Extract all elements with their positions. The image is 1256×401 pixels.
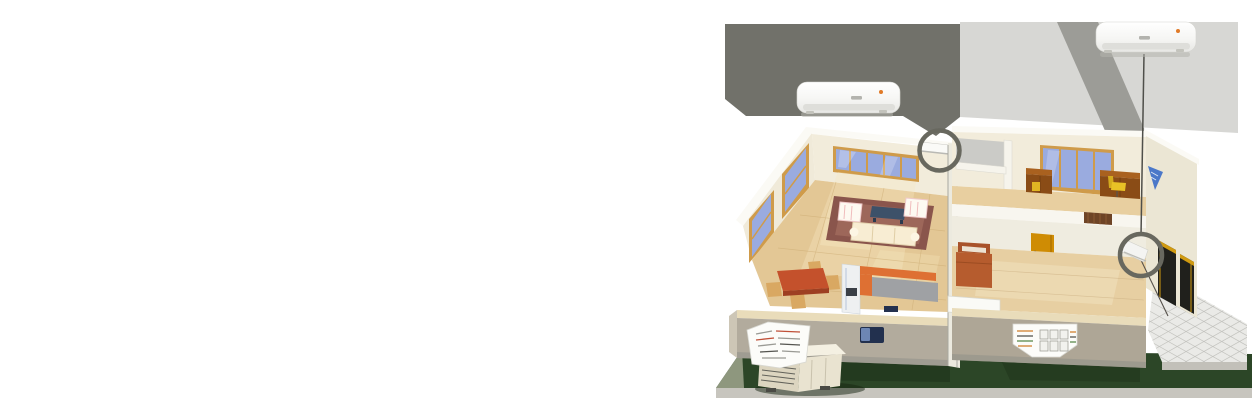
dining-table-top: [777, 268, 829, 291]
ac-bottom-vent: [1102, 43, 1190, 50]
front-wall-left-face: [729, 310, 737, 358]
spec-callout-card-left: [747, 322, 810, 368]
bed: [956, 242, 992, 288]
kitchen-counter-orange-leg: [860, 274, 872, 296]
condenser-foot: [766, 388, 776, 392]
dining-chair: [766, 282, 782, 297]
armchair-right: [904, 198, 928, 218]
ac-indicator-light: [1176, 29, 1180, 33]
right-building: [948, 126, 1256, 401]
ac-indicator-light: [879, 90, 883, 94]
ac-logo: [851, 96, 862, 100]
house-ac-illustration: [0, 0, 1256, 401]
patio-edge: [1162, 362, 1247, 370]
kitchen-appliance-dark: [884, 306, 898, 312]
office-storage-yellow: [1032, 182, 1040, 191]
ac-flap-left: [806, 111, 814, 114]
indoor-ac-unit-enlarged-left: [797, 82, 900, 117]
armchair-left: [838, 202, 862, 222]
ac-bottom-vent: [803, 104, 895, 111]
ac-flap-right: [1176, 49, 1184, 52]
right-exterior-wall: [1144, 129, 1199, 318]
wall-vent-unit: [860, 327, 884, 343]
page-canvas: [0, 0, 1256, 401]
condenser-foot: [820, 386, 830, 390]
dining-chair: [790, 294, 806, 309]
ac-flap-right: [879, 110, 887, 113]
indoor-ac-unit-enlarged-right: [1096, 22, 1196, 57]
beam-left-dark: [725, 24, 960, 136]
ac-flap-left: [1104, 50, 1112, 53]
divider-vent-mat: [1084, 212, 1112, 225]
ac-logo: [1139, 36, 1150, 40]
kitchen-sink: [846, 288, 857, 296]
corner-window-slot-2: [1180, 254, 1194, 314]
